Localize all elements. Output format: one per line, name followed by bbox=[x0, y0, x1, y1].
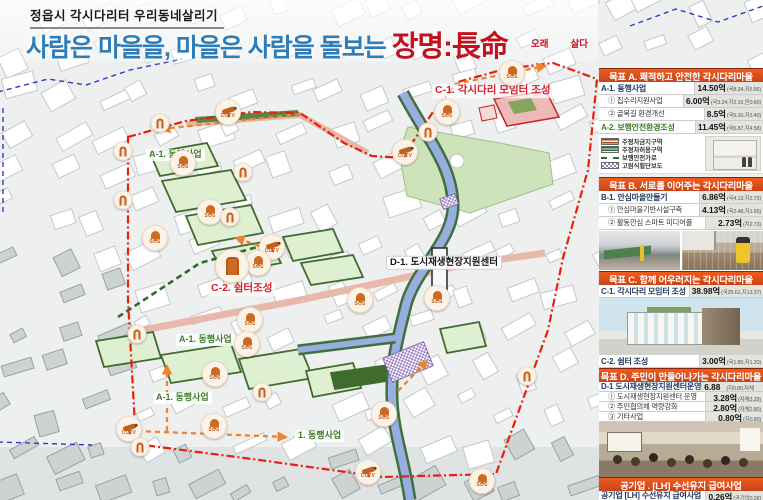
legend-illustration bbox=[705, 136, 761, 171]
budget-row: ③ 기타사업0.80억(지0.80) bbox=[599, 412, 763, 422]
legend-item: 주정차금지구역 bbox=[601, 137, 705, 145]
sos-icon: SOS bbox=[170, 150, 196, 176]
section-c1-row: C-1. 각시다리 모임터 조성38.98억(국25.61,지13.37) bbox=[599, 285, 763, 298]
sos-icon: SOS bbox=[245, 250, 271, 276]
annotation-salda: 살다 bbox=[570, 36, 587, 50]
budget-row: A-1. 동행사업14.50억(국8.34,지5.56) bbox=[599, 82, 763, 95]
sos-icon: SOS bbox=[237, 307, 263, 333]
budget-row: ② 주민협의체 역량강화2.80억(자체2.80) bbox=[599, 402, 763, 412]
sos-icon: SOS bbox=[347, 287, 373, 313]
budget-row: ① 안심마을기반시설구축4.13억(국2.48,지1.65) bbox=[599, 204, 763, 217]
budget-row: 공기업 [LH] 수선유지 급여사업0.26억(공기업0.26) bbox=[599, 491, 763, 500]
section-d-photo bbox=[599, 422, 763, 477]
map-label: D-1. 도시재생현장지원센터 bbox=[386, 256, 502, 270]
render-roof bbox=[647, 307, 691, 313]
door-icon bbox=[151, 114, 170, 133]
section-d-rows: D-1 도시재생현장지원센터운영6.88억(지0.80,자체6.08)① 도시재… bbox=[599, 382, 763, 422]
door-icon bbox=[419, 123, 438, 142]
person-illustration bbox=[748, 157, 752, 167]
cctv-icon: CCTV bbox=[392, 139, 418, 165]
door-icon bbox=[518, 367, 537, 386]
render-right-wing bbox=[702, 308, 740, 344]
door-icon bbox=[128, 325, 147, 344]
sos-icon: SOS bbox=[371, 401, 397, 427]
budget-row: C-2. 쉼터 조성3.00억(국1.80,지1.20) bbox=[599, 355, 763, 368]
pole-shape bbox=[640, 245, 645, 261]
yellow-pole-shape bbox=[736, 237, 750, 263]
sos-icon: SOS bbox=[469, 468, 495, 494]
sos-icon: SOS bbox=[424, 285, 450, 311]
door-icon bbox=[215, 249, 249, 283]
door-icon bbox=[221, 208, 240, 227]
photo-alley bbox=[599, 231, 680, 270]
section-b-header: 목표 B. 서로를 이어주는 각시다리마을 bbox=[599, 177, 763, 191]
title-red-text: 장명:長命 bbox=[392, 31, 508, 63]
sos-icon: SOS bbox=[434, 99, 460, 125]
section-b-rows: B-1. 안심마을만들기6.86억(국4.13,지2.73)① 안심마을기반시설… bbox=[599, 191, 763, 230]
section-c2-row: C-2. 쉼터 조성3.00억(국1.80,지1.20) bbox=[599, 355, 763, 368]
sos-icon: SOS bbox=[201, 413, 227, 439]
section-c-header: 목표 C. 함께 어우러지는 각시다리마을 bbox=[599, 271, 763, 285]
legend-item: 고원식횡단보도 bbox=[601, 162, 705, 170]
door-icon bbox=[234, 163, 253, 182]
budget-row: ② 골목길 환경개선8.5억(국5.10,지3.40) bbox=[599, 108, 763, 121]
map-label: C-1. 각시다리 모임터 조성 bbox=[432, 84, 554, 98]
page-title: 사람은 마을을, 마을은 사람을 돌보는장명:長命 오래 살다 bbox=[26, 23, 508, 65]
render-main-wing bbox=[627, 312, 704, 345]
map-label: C-2. 쉼터조성 bbox=[208, 282, 275, 296]
budget-row: ② 활동안심 스마트 미디어폴2.73억(지2.73) bbox=[599, 217, 763, 230]
budget-row: D-1 도시재생현장지원센터운영6.88억(지0.80,자체6.08) bbox=[599, 382, 763, 392]
budget-row: ① 집수리지원사업6.00억(국3.24,지2.16,민0.60) bbox=[599, 95, 763, 108]
section-lh-header: 공기업 . [LH] 수선유지 급여사업 bbox=[599, 477, 763, 491]
door-icon bbox=[114, 142, 133, 161]
map-label: A-1. 동행사업 bbox=[176, 334, 235, 346]
cctv-icon: CCTV bbox=[355, 459, 381, 485]
door-icon bbox=[131, 438, 150, 457]
section-b-photos bbox=[599, 230, 763, 271]
map-legend: 주정차금지구역주정차허용구역보행안전가로고원식횡단보도 bbox=[599, 134, 763, 174]
audience-shapes bbox=[613, 455, 622, 464]
title-blue-text: 사람은 마을을, 마을은 사람을 돌보는 bbox=[26, 34, 386, 62]
section-a-rows: A-1. 동행사업14.50억(국8.34,지5.56)① 집수리지원사업6.0… bbox=[599, 82, 763, 134]
budget-row: C-1. 각시다리 모임터 조성38.98억(국25.61,지13.37) bbox=[599, 285, 763, 298]
legend-items: 주정차금지구역주정차허용구역보행안전가로고원식횡단보도 bbox=[601, 136, 705, 171]
sos-icon: SOS bbox=[142, 225, 168, 251]
title-annotations: 오래 살다 bbox=[531, 36, 588, 50]
projector-screen-shape bbox=[607, 432, 641, 452]
sos-icon: SOS bbox=[197, 199, 223, 225]
map-label: 1. 동행사업 bbox=[295, 430, 344, 442]
budget-row: ① 도시재생현장지원센터 운영3.28억(자체3.28) bbox=[599, 392, 763, 402]
legend-swatch bbox=[601, 138, 619, 145]
annotation-orae: 오래 bbox=[531, 36, 548, 50]
window-shape bbox=[740, 428, 760, 451]
legend-swatch bbox=[601, 162, 619, 169]
photo-safety-pole bbox=[682, 231, 763, 270]
sos-icon: SOS bbox=[202, 361, 228, 387]
cctv-icon: CCTV bbox=[215, 99, 241, 125]
door-icon bbox=[114, 191, 133, 210]
legend-swatch bbox=[601, 157, 619, 159]
legend-item: 보행안전가로 bbox=[601, 154, 705, 162]
person-illustration bbox=[742, 157, 746, 167]
section-d-header: 목표 D. 주민이 만들어나가는 각시다리마을 bbox=[599, 368, 763, 382]
budget-row: B-1. 안심마을만들기6.86억(국4.13,지2.73) bbox=[599, 191, 763, 204]
poster: A-1. 동행사업A-1. 동행사업A-1. 동행사업1. 동행사업C-1. 각… bbox=[0, 0, 763, 500]
legend-item: 주정차허용구역 bbox=[601, 145, 705, 153]
legend-swatch bbox=[601, 146, 619, 153]
building-shape bbox=[682, 231, 716, 250]
budget-sidebar: 목표 A. 쾌적하고 안전한 각시다리마을 A-1. 동행사업14.50억(국8… bbox=[599, 68, 763, 500]
sos-icon: SOS bbox=[234, 331, 260, 357]
door-icon bbox=[253, 383, 272, 402]
map-label: A-1. 동행사업 bbox=[153, 392, 212, 404]
c1-building-render bbox=[599, 298, 763, 355]
budget-row: A-2. 보행안전환경조성11.45억(국6.87,지4.58) bbox=[599, 121, 763, 134]
section-lh-rows: 공기업 [LH] 수선유지 급여사업0.26억(공기업0.26) bbox=[599, 491, 763, 500]
section-a-header: 목표 A. 쾌적하고 안전한 각시다리마을 bbox=[599, 68, 763, 82]
